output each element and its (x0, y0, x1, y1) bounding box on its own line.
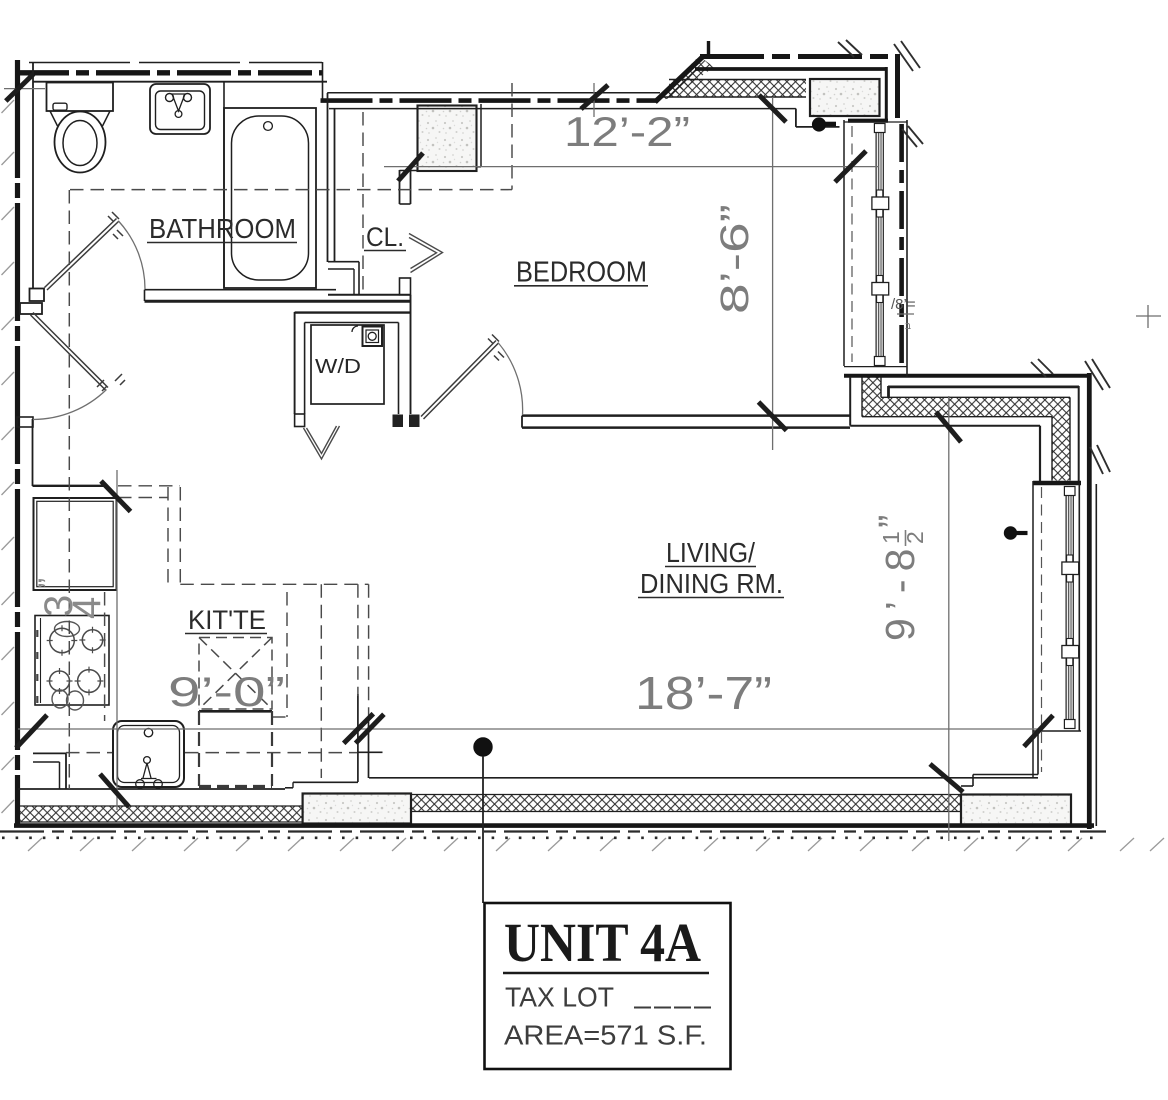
svg-text:”: ” (33, 578, 66, 588)
svg-text:AREA=571 S.F.: AREA=571 S.F. (504, 1020, 707, 1051)
svg-text:1: 1 (878, 531, 904, 544)
svg-text:CL.: CL. (366, 222, 404, 252)
svg-text:LIVING/: LIVING/ (666, 537, 755, 568)
svg-text:18’-7”: 18’-7” (635, 667, 772, 719)
svg-text:”: ” (871, 515, 915, 528)
svg-text:/8’=: /8’= (891, 296, 916, 313)
svg-text:DINING RM.: DINING RM. (640, 568, 783, 599)
svg-text:9’-8: 9’-8 (877, 541, 923, 641)
svg-text:ב: ב (905, 321, 911, 332)
svg-text:8’-6”: 8’-6” (713, 204, 757, 314)
svg-text:KIT'TE: KIT'TE (188, 605, 266, 635)
svg-text:9’-0”: 9’-0” (168, 668, 285, 715)
svg-text:4: 4 (65, 597, 109, 619)
svg-text:BATHROOM: BATHROOM (149, 213, 296, 244)
svg-text:12’-2”: 12’-2” (564, 108, 690, 155)
svg-text:UNIT 4A: UNIT 4A (504, 912, 701, 973)
svg-text:BEDROOM: BEDROOM (516, 257, 647, 289)
svg-text:TAX LOT: TAX LOT (505, 981, 614, 1012)
svg-text:W/D: W/D (315, 355, 361, 378)
